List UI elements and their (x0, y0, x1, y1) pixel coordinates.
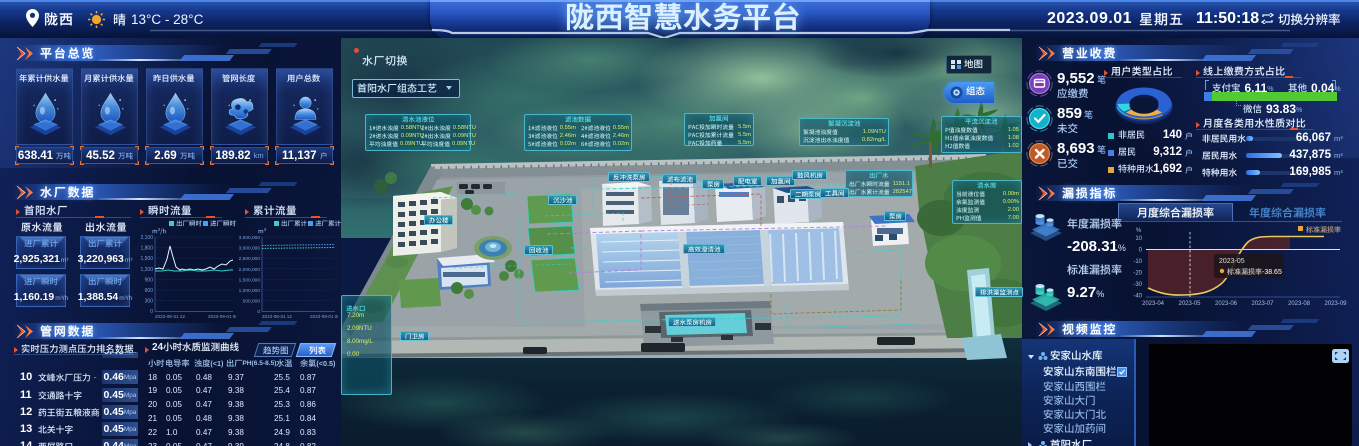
svg-text:2023-09-01 00: 2023-09-01 00 (310, 314, 338, 319)
svg-text:3,000,000: 3,000,000 (239, 246, 261, 252)
svg-text:1,800: 1,800 (140, 246, 153, 252)
svg-text:10: 10 (1135, 236, 1142, 242)
svg-text:2023-08-31 12: 2023-08-31 12 (155, 314, 185, 319)
svg-text:1,000,000: 1,000,000 (239, 288, 261, 294)
svg-text:2023-05: 2023-05 (1219, 258, 1245, 265)
svg-text:-30: -30 (1133, 282, 1142, 288)
svg-text:1,200: 1,200 (140, 267, 153, 273)
svg-text:-10: -10 (1133, 259, 1142, 265)
svg-text:2023-07: 2023-07 (1251, 301, 1274, 306)
svg-text:3,500,000: 3,500,000 (239, 235, 261, 241)
svg-text:0: 0 (1139, 248, 1143, 254)
svg-text:2023-08: 2023-08 (1288, 301, 1311, 306)
svg-text:2023-08-31 12: 2023-08-31 12 (262, 314, 292, 319)
svg-text:1,500,000: 1,500,000 (239, 277, 261, 283)
svg-text:1,500: 1,500 (140, 256, 153, 262)
svg-text:300: 300 (145, 299, 154, 305)
svg-text:2023-05: 2023-05 (1178, 301, 1201, 306)
svg-text:%: % (1136, 228, 1142, 234)
svg-text:2023-06: 2023-06 (1215, 301, 1238, 306)
svg-text:-20: -20 (1133, 271, 1142, 277)
svg-text:900: 900 (145, 277, 154, 283)
svg-text:2,500,000: 2,500,000 (239, 256, 261, 262)
svg-text:2023-04: 2023-04 (1142, 301, 1165, 306)
svg-text:2023-09: 2023-09 (1324, 301, 1347, 306)
svg-text:600: 600 (145, 288, 154, 294)
svg-text:2,000,000: 2,000,000 (239, 267, 261, 273)
svg-text:2023-09-01 00: 2023-09-01 00 (208, 314, 236, 319)
svg-text:-40: -40 (1133, 294, 1142, 300)
svg-text:2,100: 2,100 (140, 235, 153, 241)
svg-text:500,000: 500,000 (243, 299, 261, 305)
svg-text:0: 0 (150, 309, 153, 315)
svg-text:-38.65: -38.65 (1262, 269, 1282, 276)
svg-text:0: 0 (257, 309, 260, 315)
